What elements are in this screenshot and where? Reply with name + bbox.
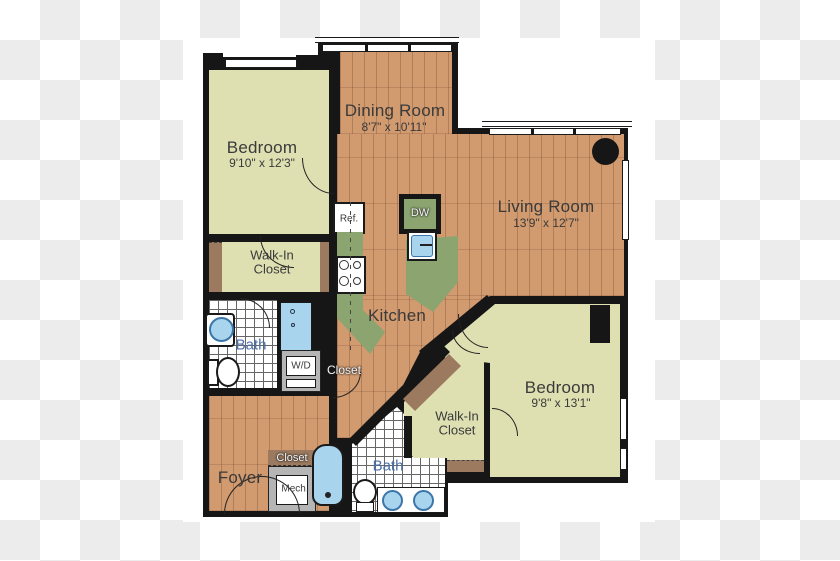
- balcony-rail-living: [482, 121, 632, 127]
- kitchen-sink-icon: [411, 235, 433, 257]
- bath-1-label: Bath: [236, 337, 267, 354]
- walk-in-closet-1-label: Walk-In Closet: [240, 249, 304, 278]
- bath-2-sink-2-icon: [413, 490, 434, 511]
- shower-1: [280, 302, 312, 352]
- closet-2-threshold: [447, 460, 484, 472]
- bedroom-2-window-right-2: [620, 448, 627, 470]
- dining-window-mullion-2: [408, 44, 411, 52]
- bath-2-sink-icon: [382, 490, 403, 511]
- floor-plan-image: Dining Room 8'7" x 10'11" Living Room 13…: [0, 0, 840, 561]
- kitchen-closet-label: Closet: [327, 363, 361, 377]
- dishwasher-label: DW: [411, 207, 429, 219]
- bath-2-label: Bath: [373, 458, 404, 475]
- balcony-rail-dining: [315, 37, 459, 43]
- kitchen-label: Kitchen: [368, 306, 426, 326]
- bedroom-2-label: Bedroom: [525, 378, 595, 398]
- dining-window: [322, 44, 452, 52]
- bedroom-2-column: [590, 305, 610, 343]
- closet-1-threshold-right: [320, 242, 329, 292]
- dining-room-dims: 8'7" x 10'11": [362, 120, 427, 134]
- living-room-label: Living Room: [498, 197, 595, 217]
- living-window-mullion: [531, 128, 534, 135]
- toilet-2-base: [356, 502, 374, 512]
- bath-1-sink-icon: [209, 317, 234, 342]
- refrigerator-label: Ref.: [340, 214, 358, 225]
- toilet-1-icon: [216, 357, 240, 387]
- bedroom-1-window: [225, 59, 297, 68]
- shower-control-icon: [291, 323, 295, 327]
- living-window-mullion-2: [573, 128, 576, 135]
- dining-window-mullion: [365, 44, 368, 52]
- bedroom-2-dims: 9'8" x 13'1": [531, 396, 590, 410]
- bedroom-1-label: Bedroom: [227, 138, 297, 158]
- closet-1-threshold-left: [209, 242, 222, 292]
- foyer-closet-label: Closet: [276, 452, 307, 464]
- kitchen-faucet-icon: [420, 244, 432, 246]
- foyer-label: Foyer: [218, 468, 262, 488]
- washer-dryer-label: W/D: [291, 361, 310, 372]
- bedroom-1-dims: 9'10" x 12'3": [229, 156, 295, 170]
- dining-room-label: Dining Room: [345, 101, 445, 121]
- living-room-column: [592, 138, 619, 165]
- living-window-right: [622, 160, 629, 240]
- walk-in-closet-2-label: Walk-In Closet: [425, 410, 489, 439]
- bedroom-2-window-right: [620, 398, 627, 440]
- living-window-top: [489, 128, 621, 135]
- tub-drain-icon: [325, 492, 331, 498]
- shower-head-icon: [290, 309, 295, 314]
- living-room-dims: 13'9" x 12'7": [513, 216, 579, 230]
- bath-2-partition-wall: [404, 416, 412, 458]
- washer-dryer-drawer: [286, 379, 316, 388]
- mechanical-label: Mech.: [281, 484, 308, 495]
